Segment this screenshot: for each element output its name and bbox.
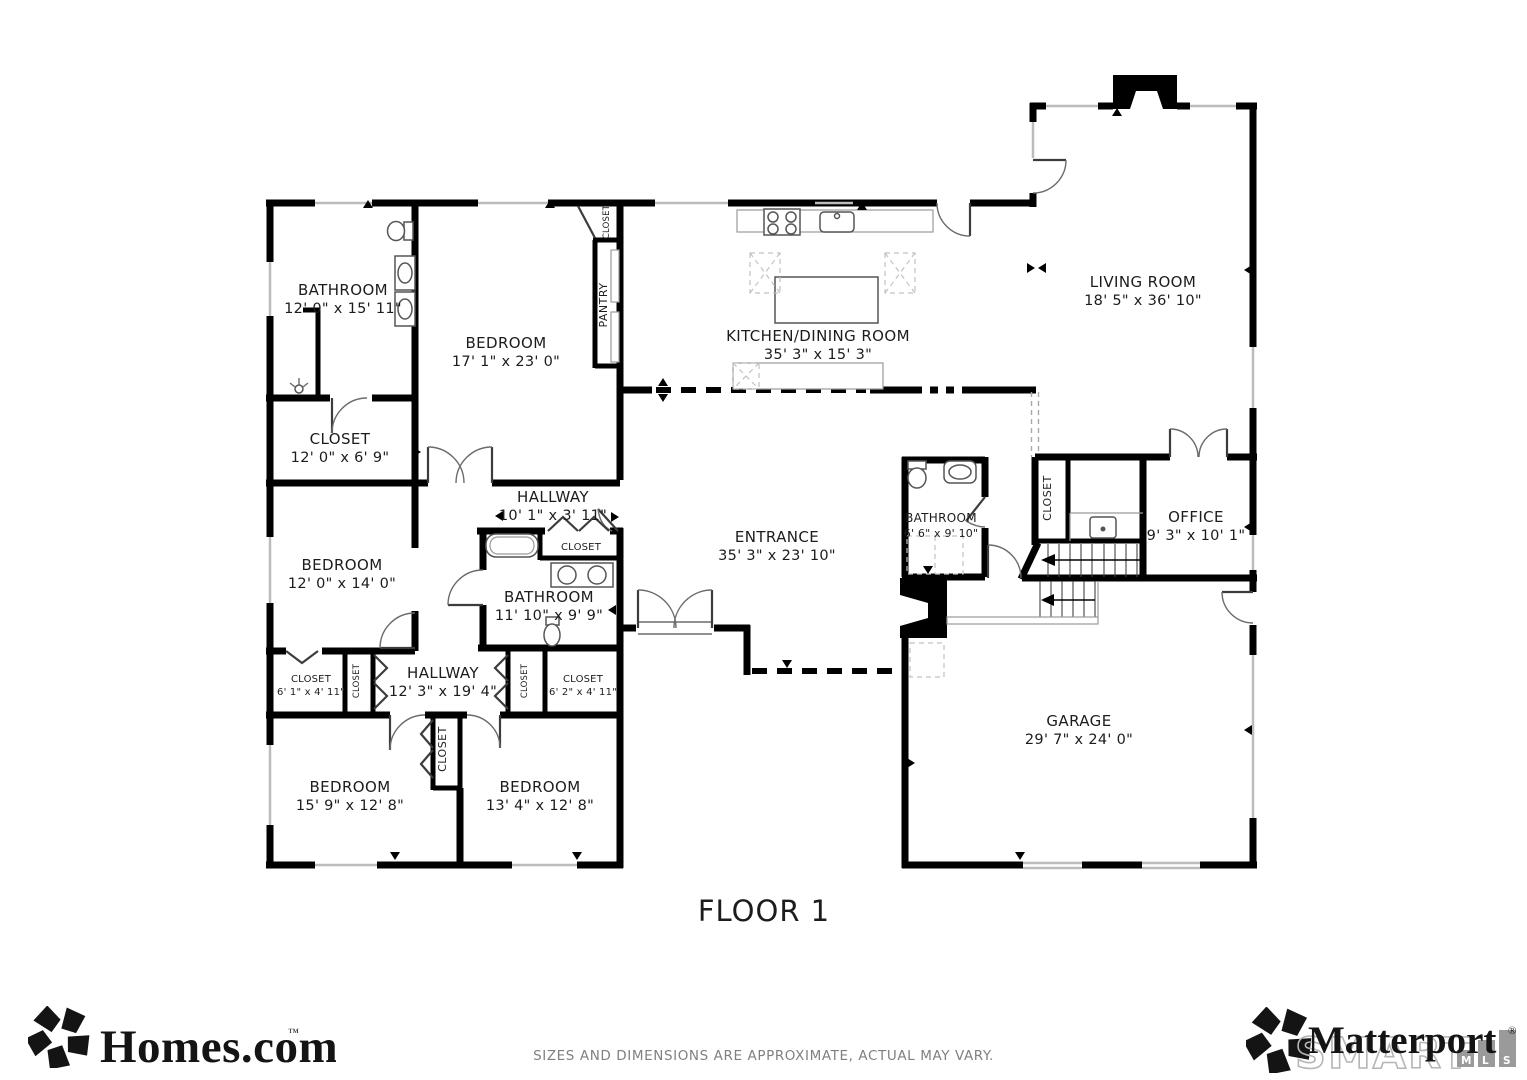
room-dims-closet-1: 12' 0" x 6' 9" <box>291 450 390 466</box>
homes-pinwheel-icon <box>26 1003 95 1076</box>
room-label-living-room: LIVING ROOM <box>1090 273 1196 291</box>
matterport-smartmls-logo: SMART M L S Matterport ® <box>1240 1000 1527 1080</box>
room-label-closet-4: CLOSET <box>563 674 604 685</box>
room-label-bath-closet: CLOSET <box>561 542 602 553</box>
room-label-hallway-2: HALLWAY <box>407 664 479 682</box>
room-dims-bathroom-2: 11' 10" x 9' 9" <box>495 608 603 624</box>
room-dims-closet-4: 6' 2" x 4' 11" <box>549 687 617 698</box>
toilet-icon <box>404 222 413 240</box>
room-label-hallway-1: HALLWAY <box>517 488 589 506</box>
room-dims-garage: 29' 7" x 24' 0" <box>1025 732 1133 748</box>
room-dims-bedroom-3: 15' 9" x 12' 8" <box>296 798 404 814</box>
room-label-bathroom-1: BATHROOM <box>298 281 388 299</box>
floor-plan-canvas: BATHROOM 12' 0" x 15' 11" BEDROOM 17' 1"… <box>0 0 1527 1080</box>
room-label-closet-2: CLOSET <box>1041 475 1054 521</box>
stair-arrow-icon <box>1041 594 1054 606</box>
room-dims-bathroom-1: 12' 0" x 15' 11" <box>284 301 402 317</box>
room-labels: BATHROOM 12' 0" x 15' 11" BEDROOM 17' 1"… <box>277 204 1245 928</box>
room-label-closet-4b: CLOSET <box>520 663 530 698</box>
room-label-closet-5: CLOSET <box>436 726 449 772</box>
room-dims-hallway-2: 12' 3" x 19' 4" <box>389 684 497 700</box>
room-dims-bedroom-4: 13' 4" x 12' 8" <box>486 798 594 814</box>
room-label-closet-1: CLOSET <box>310 430 371 448</box>
staircase <box>947 544 1143 624</box>
room-dims-closet-3: 6' 1" x 4' 11" <box>277 687 345 698</box>
room-dims-hallway-1: 10' 1" x 3' 11" <box>499 508 607 524</box>
homes-logo: Homes.com ™ <box>26 1002 336 1080</box>
room-label-closet-3: CLOSET <box>291 674 332 685</box>
room-label-bedroom-1: BEDROOM <box>465 334 546 352</box>
room-label-pantry-closet: CLOSET <box>602 204 612 239</box>
room-dims-entrance: 35' 3" x 23' 10" <box>718 548 836 564</box>
homes-wordmark: Homes.com <box>100 1021 336 1073</box>
shelf-icon <box>611 312 619 362</box>
room-label-pantry: PANTRY <box>597 282 610 327</box>
matterport-wordmark: Matterport <box>1308 1019 1496 1062</box>
homes-tm: ™ <box>288 1027 299 1039</box>
room-dims-living-room: 18' 5" x 36' 10" <box>1084 293 1202 309</box>
room-label-office: OFFICE <box>1168 508 1224 526</box>
floor-title: FLOOR 1 <box>698 894 830 928</box>
matterport-reg: ® <box>1508 1025 1516 1037</box>
room-label-bedroom-2: BEDROOM <box>301 556 382 574</box>
island-icon <box>775 277 878 323</box>
room-label-bathroom-2: BATHROOM <box>504 588 594 606</box>
room-label-bedroom-3: BEDROOM <box>309 778 390 796</box>
room-label-entrance: ENTRANCE <box>735 528 819 546</box>
room-dims-bedroom-2: 12' 0" x 14' 0" <box>288 576 396 592</box>
room-label-garage: GARAGE <box>1046 712 1111 730</box>
room-dims-bedroom-1: 17' 1" x 23' 0" <box>452 354 560 370</box>
shower-icon <box>295 385 303 393</box>
room-dims-kitchen: 35' 3" x 15' 3" <box>764 347 872 363</box>
room-dims-office: 9' 3" x 10' 1" <box>1147 528 1246 544</box>
floor-plan-page: BATHROOM 12' 0" x 15' 11" BEDROOM 17' 1"… <box>0 0 1527 1080</box>
room-label-bedroom-4: BEDROOM <box>499 778 580 796</box>
room-label-closet-3b: CLOSET <box>352 663 362 698</box>
shelf-icon <box>611 250 619 302</box>
room-dims-bathroom-3: 6' 6" x 9' 10" <box>904 527 978 540</box>
mls-letter-s: S <box>1503 1055 1511 1067</box>
room-label-kitchen: KITCHEN/DINING ROOM <box>726 327 910 345</box>
room-label-bathroom-3: BATHROOM <box>905 511 977 525</box>
